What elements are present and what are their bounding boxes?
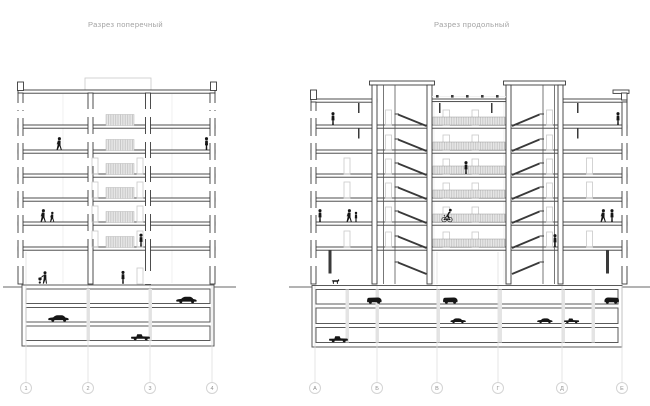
building-structure <box>17 78 216 284</box>
svg-text:Е: Е <box>620 386 624 392</box>
tower-windows <box>386 110 553 247</box>
dog-silhouette <box>332 279 340 284</box>
roof-slab <box>311 99 377 102</box>
axis-marker-2: 2 <box>83 383 94 394</box>
tower-wall <box>558 85 563 284</box>
person-silhouette <box>553 234 556 247</box>
person-silhouette <box>616 112 619 125</box>
atrium-railings <box>433 117 505 247</box>
tower-wall <box>506 85 511 284</box>
person-silhouette <box>355 212 357 222</box>
floor-slab <box>18 90 215 93</box>
svg-text:4: 4 <box>210 386 213 392</box>
axis-marker-1: 1 <box>21 383 32 394</box>
parking-garage <box>22 285 214 346</box>
blueprint-page: { "left_section": { "title": "Разрез поп… <box>0 0 650 406</box>
person-silhouette <box>205 137 208 150</box>
person-silhouette <box>347 209 352 222</box>
tower-roof <box>370 81 435 85</box>
svg-text:3: 3 <box>148 386 151 392</box>
drawing-canvas: 1 2 3 4 <box>0 0 650 406</box>
axis-marker-4: 4 <box>207 383 218 394</box>
building-structure <box>310 81 629 284</box>
person-silhouette <box>41 209 46 222</box>
longitudinal-section-drawing: А Б В Г Д Е <box>289 81 650 394</box>
person-silhouette <box>331 112 334 125</box>
person-with-stroller-silhouette <box>38 271 47 283</box>
tower-roof <box>504 81 566 85</box>
person-silhouette <box>601 209 606 222</box>
axis-marker-b: Б <box>372 383 383 394</box>
floor-slab <box>311 247 627 250</box>
floor-slab <box>311 125 627 128</box>
axis-marker-a: А <box>310 383 321 394</box>
tower-wall <box>427 85 432 284</box>
parking-level <box>316 328 618 343</box>
axis-marker-e: Е <box>617 383 628 394</box>
axis-markers: А Б В Г Д Е <box>310 383 628 394</box>
tower-wall <box>372 85 377 284</box>
person-silhouette <box>610 209 613 222</box>
atrium-door-frames <box>443 110 479 247</box>
axis-markers: 1 2 3 4 <box>21 383 218 394</box>
svg-text:2: 2 <box>86 386 89 392</box>
stair-flights <box>106 115 134 248</box>
svg-text:Г: Г <box>497 386 500 392</box>
axis-marker-3: 3 <box>145 383 156 394</box>
person-silhouette <box>139 234 142 247</box>
person-silhouette <box>50 212 54 222</box>
svg-text:В: В <box>435 386 439 392</box>
axis-grid-lines-upper <box>26 252 212 284</box>
svg-text:А: А <box>313 386 317 392</box>
person-silhouette <box>121 271 124 284</box>
svg-text:1: 1 <box>24 386 27 392</box>
svg-text:Д: Д <box>560 386 564 392</box>
exterior-wall <box>311 102 316 284</box>
person-silhouette <box>318 209 321 222</box>
person-silhouette <box>57 137 62 150</box>
axis-marker-g: Г <box>493 383 504 394</box>
svg-text:Б: Б <box>375 386 379 392</box>
transverse-section-drawing: 1 2 3 4 <box>3 78 236 394</box>
exterior-wall <box>622 102 627 284</box>
roof-bulkhead <box>85 78 151 90</box>
parking-level <box>316 290 618 305</box>
parapet <box>211 82 217 91</box>
axis-marker-d: Д <box>557 383 568 394</box>
floor-slab <box>311 222 627 225</box>
axis-grid-lines-upper <box>315 252 622 284</box>
parapet <box>18 82 24 91</box>
parapet <box>622 93 628 100</box>
roof-slab <box>563 99 627 102</box>
parapet <box>311 90 317 100</box>
people <box>38 137 208 284</box>
parking-garage <box>312 286 622 348</box>
floor-slab <box>311 150 627 153</box>
floor-slab <box>311 198 627 201</box>
axis-marker-v: В <box>432 383 443 394</box>
atrium-roof <box>431 99 507 102</box>
floor-slab <box>311 174 627 177</box>
parking-level <box>26 326 210 341</box>
